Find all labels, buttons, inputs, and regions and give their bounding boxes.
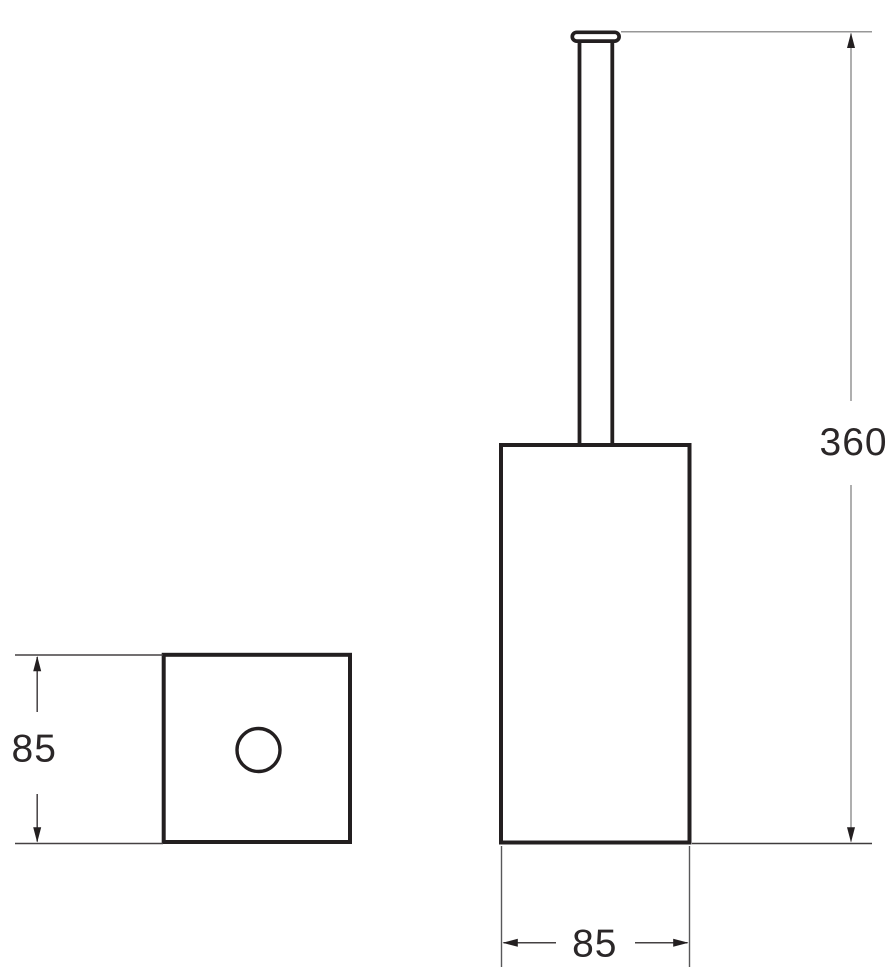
svg-text:360: 360 [820,421,888,464]
svg-text:85: 85 [572,923,617,966]
svg-text:85: 85 [12,728,57,771]
